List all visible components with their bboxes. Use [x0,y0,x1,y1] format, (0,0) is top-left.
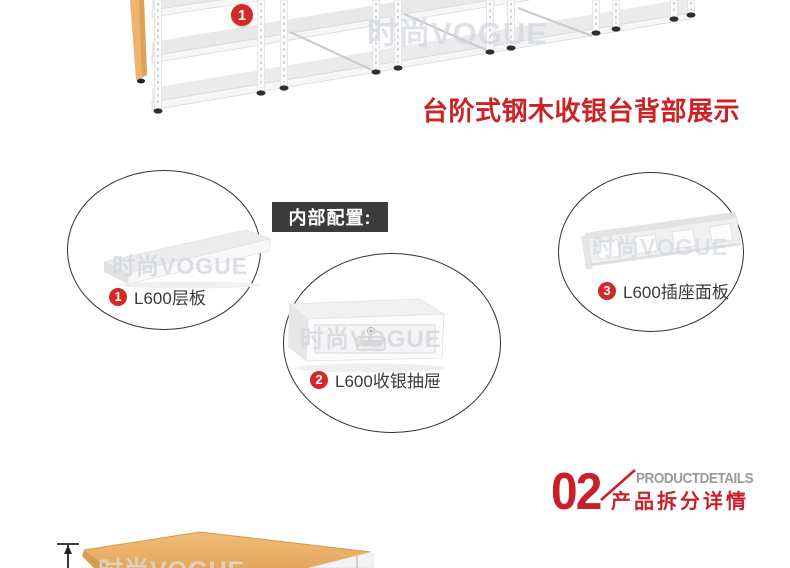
part-number-badge: 3 [598,282,616,300]
inner-config-label: 内部配置: [272,202,388,232]
keyhole-icon [367,327,374,334]
counter-top-image [50,528,380,568]
part-label-text: L600收银抽屉 [335,367,441,392]
product-detail-page: 时尚VOGUE 1 台阶式钢木收银台背部展示 时尚VOGUE 内部配置: 1 L… [0,0,790,568]
part-label-text: L600层板 [134,284,206,309]
socket-panel-image [578,195,750,277]
part-label-1: 1 L600层板 [109,284,206,309]
part-number-badge: 2 [310,371,328,389]
part-label-2: 2 L600收银抽屉 [310,367,441,392]
part-label-text: L600插座面板 [623,278,729,303]
part-label-3: 3 L600插座面板 [598,278,729,303]
drawer-handle [357,337,385,350]
section-title-cn: 产品拆分详情 [611,485,749,514]
cash-drawer-image [282,290,460,378]
part-badge-1-overlay: 1 [231,4,253,26]
shelf-board-image [96,220,276,290]
dimension-arrow-icon [57,544,79,568]
wood-leg [130,0,147,84]
section-number: 02 [551,466,601,518]
section-heading: 台阶式钢木收银台背部展示 [422,96,740,127]
part-number-badge: 1 [109,288,127,306]
